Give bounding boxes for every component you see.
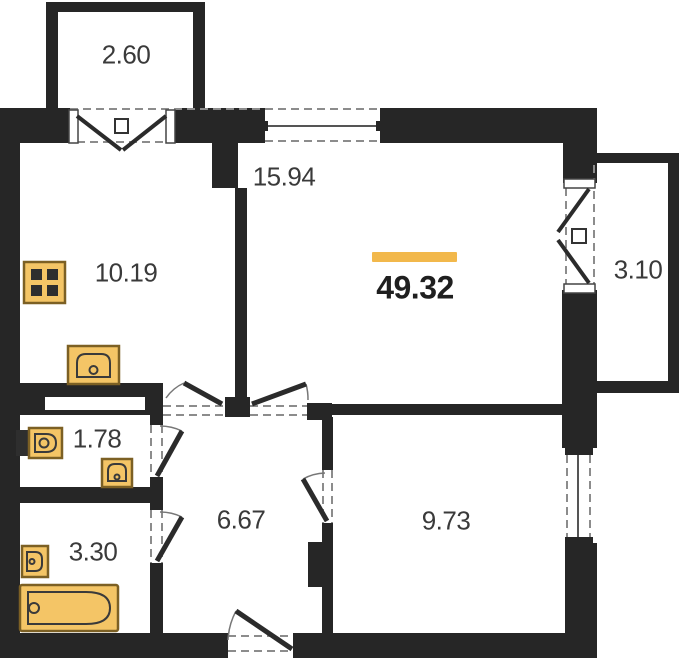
balcony-top-wall-right xyxy=(193,2,205,108)
wall-hallway-left-1 xyxy=(150,415,163,425)
wall-top-kitchen xyxy=(0,108,72,143)
bedroom-door xyxy=(303,470,332,523)
wall-right-upper xyxy=(562,290,597,448)
balcony-top-french-door xyxy=(69,110,175,150)
bathroom-small-door xyxy=(151,425,182,477)
balcony-right-french-door xyxy=(558,165,595,293)
wall-hallway-left-3 xyxy=(150,563,163,633)
window-cap-bottom xyxy=(565,537,593,544)
balcony-top-wall-top xyxy=(46,2,205,12)
balcony-right-wall-right xyxy=(668,153,679,393)
area-label-living-room: 15.94 xyxy=(253,162,316,193)
wall-bottom-right xyxy=(293,633,597,658)
bathroom-door xyxy=(151,510,182,563)
bathtub-icon xyxy=(20,585,118,631)
wall-bedroom-top xyxy=(332,404,565,415)
wall-kitchen-living xyxy=(235,188,247,397)
living-room-door xyxy=(250,384,308,415)
area-label-bathroom: 3.30 xyxy=(69,537,118,568)
kitchen-door xyxy=(163,383,225,415)
wall-kitchen-living-foot xyxy=(225,397,250,417)
windows xyxy=(70,109,590,537)
balcony-top-wall-left xyxy=(46,2,58,108)
area-label-hallway: 6.67 xyxy=(217,505,266,536)
living-window-nub-left xyxy=(259,121,268,131)
stove-icon xyxy=(24,262,65,303)
toilet-icon xyxy=(16,428,62,458)
wall-top-mid xyxy=(175,108,265,143)
floor-plan: 2.60 10.19 15.94 3.10 1.78 6.67 3.30 9.7… xyxy=(0,0,679,658)
balcony-right-wall-top xyxy=(597,153,679,163)
wall-kitchen-living-wide xyxy=(212,143,238,188)
wall-bathrooms-divider xyxy=(0,487,163,503)
total-area-value: 49.32 xyxy=(376,270,454,307)
wall-hallway-right-1 xyxy=(322,417,333,470)
vent-shaft-slot xyxy=(45,397,145,410)
washbasin-bath-icon xyxy=(22,546,48,577)
living-window-nub-right xyxy=(376,121,385,131)
wall-hallway-right-3 xyxy=(322,587,333,633)
area-label-bedroom: 9.73 xyxy=(422,506,471,537)
wall-right-corner xyxy=(563,142,597,183)
area-label-balcony-right: 3.10 xyxy=(614,255,663,286)
wall-right-lower xyxy=(565,543,597,658)
area-label-balcony-top: 2.60 xyxy=(102,40,151,71)
window-cap-top xyxy=(565,448,593,455)
wall-hallway-right-2 xyxy=(322,523,333,542)
total-area-bar xyxy=(372,252,457,262)
wall-top-living xyxy=(380,108,597,143)
entry-door xyxy=(228,611,293,651)
wall-bottom-left xyxy=(0,633,228,658)
wall-hallway-right-pilaster xyxy=(308,542,333,587)
kitchen-sink-icon xyxy=(68,346,119,384)
washbasin-small-icon xyxy=(102,459,132,487)
area-label-kitchen: 10.19 xyxy=(95,258,158,289)
area-label-bathroom-small: 1.78 xyxy=(73,424,122,455)
balcony-right-wall-bottom xyxy=(597,381,679,393)
